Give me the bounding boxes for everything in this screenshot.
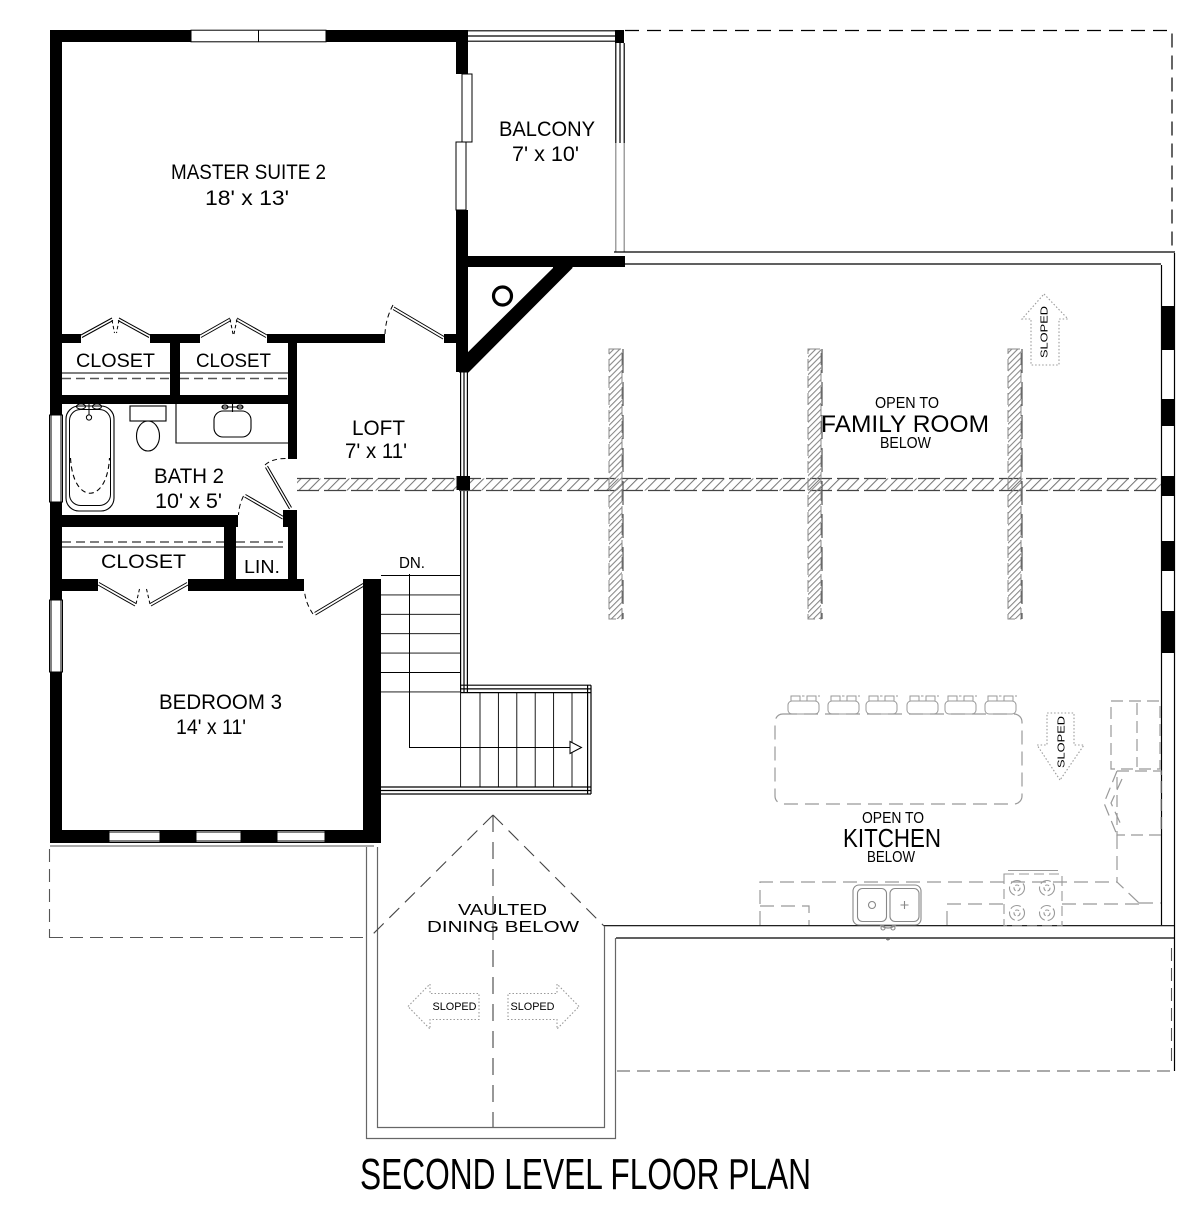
svg-text:SLOPED: SLOPED [1040,306,1051,358]
svg-text:BELOW: BELOW [867,849,916,866]
svg-text:OPEN TO: OPEN TO [875,395,939,412]
svg-text:LOFT: LOFT [352,417,405,440]
svg-text:SLOPED: SLOPED [433,1001,477,1013]
svg-text:DINING BELOW: DINING BELOW [427,919,580,936]
svg-text:MASTER SUITE 2: MASTER SUITE 2 [171,161,326,184]
svg-text:7' x 10': 7' x 10' [512,143,579,166]
svg-text:CLOSET: CLOSET [101,552,186,573]
svg-text:BEDROOM 3: BEDROOM 3 [159,691,282,714]
svg-text:SLOPED: SLOPED [1057,716,1068,768]
svg-text:14' x 11': 14' x 11' [176,716,246,739]
svg-text:7' x 11': 7' x 11' [345,440,407,463]
svg-text:10' x 5': 10' x 5' [155,490,222,513]
svg-text:CLOSET: CLOSET [76,351,155,372]
svg-text:SLOPED: SLOPED [511,1001,555,1013]
svg-text:DN.: DN. [399,555,425,572]
svg-text:BATH 2: BATH 2 [154,465,224,488]
svg-text:SECOND LEVEL FLOOR PLAN: SECOND LEVEL FLOOR PLAN [360,1150,811,1199]
svg-text:LIN.: LIN. [244,557,280,577]
svg-text:BALCONY: BALCONY [499,118,595,141]
svg-text:CLOSET: CLOSET [196,351,271,372]
svg-text:BELOW: BELOW [880,435,932,452]
svg-text:VAULTED: VAULTED [458,902,547,919]
svg-text:FAMILY ROOM: FAMILY ROOM [821,411,989,438]
svg-text:18' x 13': 18' x 13' [205,187,289,210]
